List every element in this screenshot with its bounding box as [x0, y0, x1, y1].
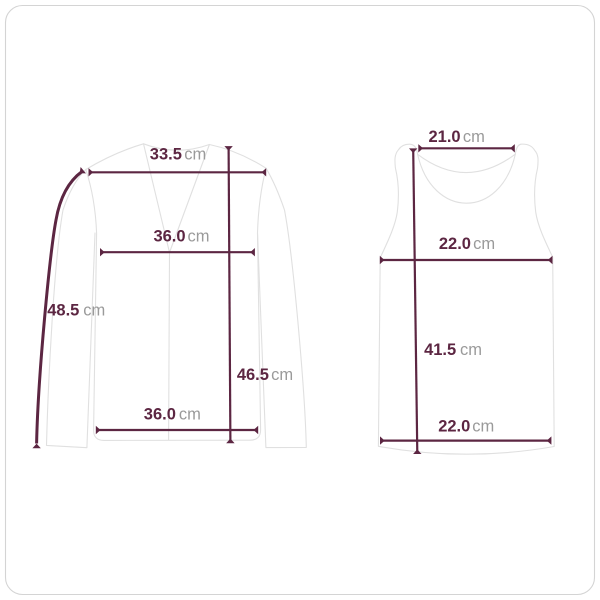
svg-text:cm: cm — [83, 301, 105, 319]
svg-text:22.0: 22.0 — [439, 235, 471, 253]
svg-text:cm: cm — [188, 228, 210, 246]
svg-text:cm: cm — [179, 405, 201, 423]
svg-text:cm: cm — [472, 417, 494, 435]
svg-text:36.0: 36.0 — [144, 405, 176, 423]
svg-text:cm: cm — [271, 366, 293, 384]
svg-text:cm: cm — [473, 235, 495, 253]
svg-text:21.0: 21.0 — [428, 128, 460, 146]
svg-text:41.5: 41.5 — [424, 341, 456, 359]
svg-text:22.0: 22.0 — [438, 417, 470, 435]
svg-text:cm: cm — [463, 128, 485, 146]
svg-text:48.5: 48.5 — [47, 301, 79, 319]
svg-text:33.5: 33.5 — [150, 146, 182, 164]
svg-text:cm: cm — [460, 341, 482, 359]
svg-text:cm: cm — [184, 146, 206, 164]
svg-text:36.0: 36.0 — [153, 228, 185, 246]
svg-text:46.5: 46.5 — [237, 366, 269, 384]
